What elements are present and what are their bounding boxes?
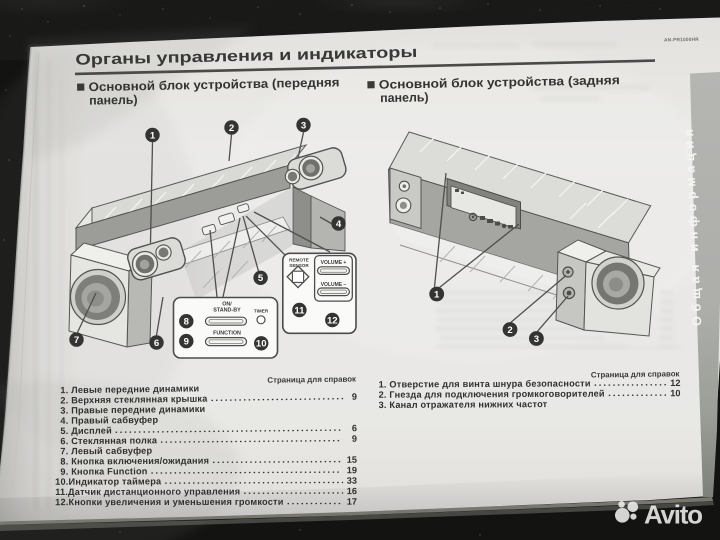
svg-text:10.Индикатор таймера: 10.Индикатор таймера [55,476,162,486]
svg-text:15: 15 [347,455,357,465]
svg-text:10: 10 [670,388,680,398]
svg-text:6. Стеклянная полка: 6. Стеклянная полка [60,435,158,446]
svg-text:11: 11 [294,305,305,316]
svg-text:VOLUME –: VOLUME – [321,282,347,288]
svg-text:6: 6 [154,338,159,349]
svg-text:REMOTE: REMOTE [289,258,309,263]
svg-text:4: 4 [336,219,342,230]
svg-text:7. Левый сабвуфер: 7. Левый сабвуфер [60,446,152,457]
svg-text:3. Канал отражателя нижних час: 3. Канал отражателя нижних частот [379,399,548,410]
svg-text:2: 2 [507,325,512,336]
svg-text:7: 7 [74,335,79,346]
svg-text:11.Датчик дистанционного управ: 11.Датчик дистанционного управления [55,486,240,497]
svg-text:3: 3 [534,334,539,345]
svg-text:6: 6 [352,423,357,433]
svg-text:17: 17 [347,497,357,507]
svg-text:AN-PR1000HR: AN-PR1000HR [664,37,699,44]
svg-text:3. Правые передние динамики: 3. Правые передние динамики [60,404,205,416]
svg-text:9: 9 [184,337,189,348]
svg-text:33: 33 [347,476,357,486]
svg-text:12: 12 [327,315,338,326]
svg-text:2. Гнезда для подключения гром: 2. Гнезда для подключения громкоговорите… [379,389,605,400]
svg-text:10: 10 [256,339,267,350]
svg-text:16: 16 [347,486,357,496]
svg-text:FUNCTION: FUNCTION [213,331,241,337]
svg-text:5: 5 [258,273,264,284]
svg-text:1: 1 [434,289,440,300]
svg-text:12: 12 [670,378,680,388]
svg-text:Страница для справок: Страница для справок [267,375,356,385]
svg-text:2: 2 [229,123,234,134]
svg-text:STAND-BY: STAND-BY [213,308,241,314]
svg-text:4. Правый сабвуфер: 4. Правый сабвуфер [60,415,158,426]
svg-text:1: 1 [150,130,156,141]
svg-text:TIMER: TIMER [254,309,269,314]
svg-text:панель): панель) [89,93,138,108]
svg-text:панель): панель) [380,90,429,105]
svg-text:1. Отверстие для винта шнура б: 1. Отверстие для винта шнура безопасност… [379,378,591,389]
svg-text:19: 19 [347,465,357,475]
svg-text:9. Кнопка Function: 9. Кнопка Function [60,466,147,476]
svg-text:12.Кнопки увеличения и уменьше: 12.Кнопки увеличения и уменьшения громко… [55,497,284,507]
svg-text:8: 8 [184,317,190,328]
svg-text:Страница для справок: Страница для справок [591,369,680,379]
svg-text:Avito: Avito [644,500,703,530]
svg-text:VOLUME +: VOLUME + [321,260,347,266]
svg-text:8. Кнопка включения/ожидания: 8. Кнопка включения/ожидания [60,456,209,467]
svg-text:5. Дисплей: 5. Дисплей [60,426,112,436]
svg-text:9: 9 [352,392,357,402]
svg-text:3: 3 [301,120,306,131]
svg-text:9: 9 [352,434,357,444]
